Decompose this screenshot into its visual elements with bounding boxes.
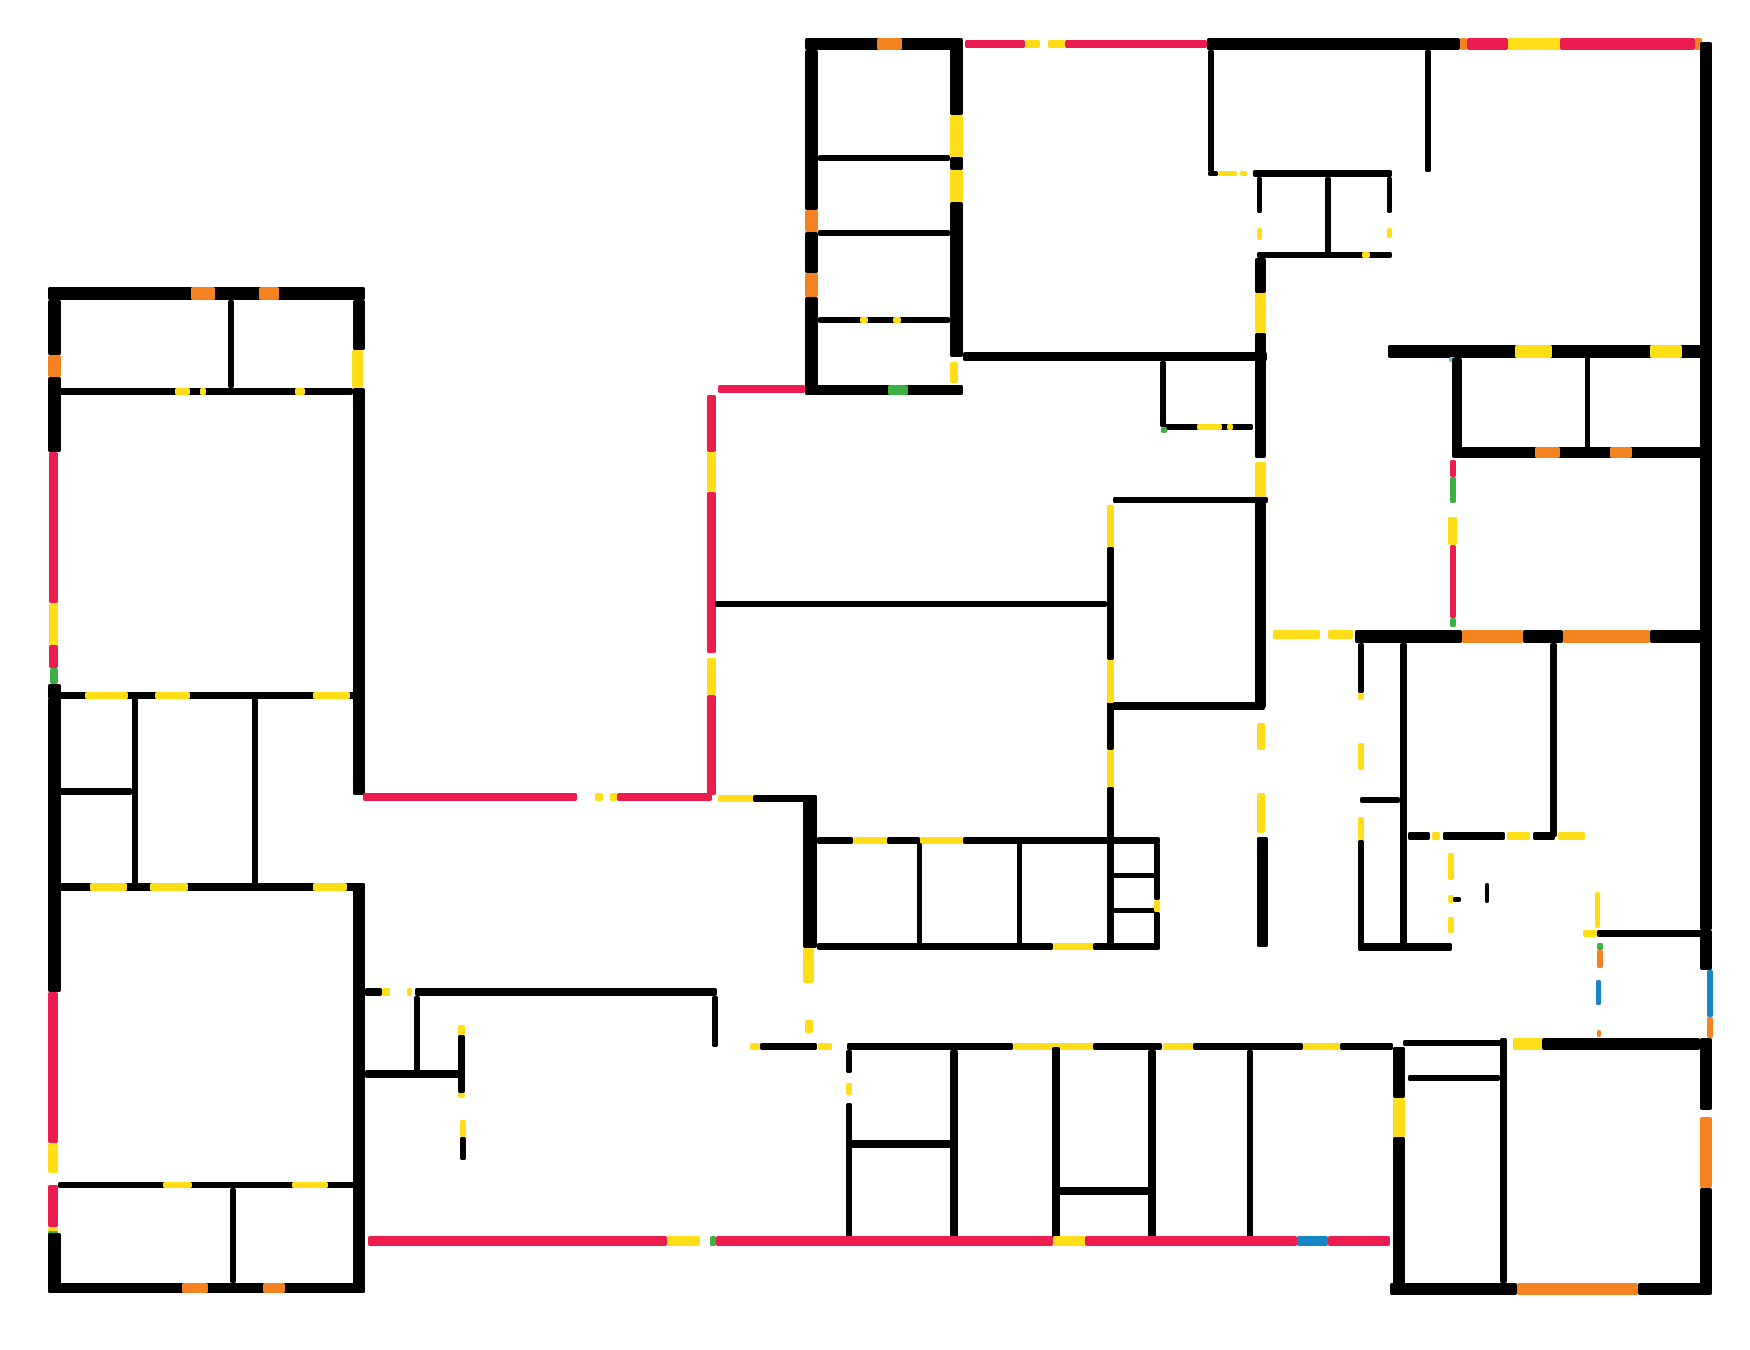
marker-yellow-segment bbox=[1255, 293, 1266, 333]
marker-yellow-segment bbox=[1432, 832, 1440, 840]
marker-blue-segment bbox=[1297, 1236, 1328, 1246]
marker-yellow-segment bbox=[1025, 40, 1040, 48]
marker-yellow-segment bbox=[1448, 917, 1454, 933]
marker-yellow-segment bbox=[407, 988, 412, 996]
wall-black-segment bbox=[1257, 252, 1392, 258]
wall-black-segment bbox=[1408, 1075, 1500, 1081]
wall-black-segment bbox=[1017, 843, 1022, 947]
wall-black-segment bbox=[818, 230, 950, 236]
wall-black-segment bbox=[460, 1137, 466, 1160]
wall-black-segment bbox=[1585, 357, 1590, 450]
wall-black-segment bbox=[1400, 643, 1407, 947]
marker-yellow-segment bbox=[707, 658, 716, 695]
marker-red-segment bbox=[1450, 460, 1456, 477]
wall-black-segment bbox=[1107, 547, 1114, 660]
marker-orange-segment bbox=[1610, 447, 1632, 458]
marker-yellow-segment bbox=[313, 692, 350, 699]
wall-black-segment bbox=[1110, 908, 1158, 913]
marker-yellow-segment bbox=[1650, 345, 1682, 358]
marker-yellow-segment bbox=[595, 793, 603, 801]
wall-black-segment bbox=[846, 1050, 852, 1073]
marker-yellow-segment bbox=[667, 1236, 700, 1246]
wall-black-segment bbox=[1257, 177, 1262, 213]
marker-yellow-segment bbox=[1513, 1038, 1542, 1050]
marker-yellow-segment bbox=[1328, 630, 1353, 639]
wall-black-segment bbox=[1485, 883, 1489, 903]
marker-yellow-segment bbox=[1154, 900, 1160, 912]
marker-yellow-segment bbox=[458, 1093, 465, 1098]
wall-black-segment bbox=[1253, 170, 1392, 177]
marker-yellow-segment bbox=[1448, 853, 1454, 880]
wall-black-segment bbox=[1255, 333, 1266, 458]
wall-black-segment bbox=[1393, 1047, 1405, 1098]
marker-green-segment bbox=[1450, 477, 1456, 503]
wall-black-segment bbox=[1542, 1038, 1700, 1050]
wall-black-segment bbox=[847, 1043, 1013, 1050]
wall-black-segment bbox=[1208, 171, 1218, 176]
wall-black-segment bbox=[817, 837, 853, 844]
marker-red-segment bbox=[718, 385, 805, 393]
marker-yellow-segment bbox=[1107, 750, 1114, 787]
wall-black-segment bbox=[1355, 630, 1462, 643]
marker-yellow-segment bbox=[1048, 40, 1065, 48]
marker-yellow-segment bbox=[200, 388, 206, 395]
wall-black-segment bbox=[1638, 1283, 1712, 1295]
marker-red-segment bbox=[1065, 40, 1207, 48]
wall-black-segment bbox=[1452, 358, 1462, 450]
marker-yellow-segment bbox=[150, 883, 188, 891]
marker-yellow-segment bbox=[1053, 1236, 1085, 1246]
marker-yellow-segment bbox=[1515, 345, 1552, 358]
marker-yellow-segment bbox=[1303, 1043, 1340, 1050]
wall-black-segment bbox=[1360, 797, 1400, 803]
wall-black-segment bbox=[1255, 258, 1266, 293]
marker-orange-segment bbox=[263, 1283, 285, 1293]
wall-black-segment bbox=[818, 155, 950, 161]
wall-black-segment bbox=[1700, 1188, 1712, 1288]
wall-black-segment bbox=[458, 1035, 465, 1093]
marker-yellow-segment bbox=[1595, 892, 1600, 928]
wall-black-segment bbox=[1257, 837, 1268, 947]
marker-yellow-segment bbox=[950, 115, 963, 157]
wall-black-segment bbox=[950, 157, 963, 170]
marker-red-segment bbox=[716, 1236, 1053, 1246]
wall-black-segment bbox=[760, 1043, 817, 1050]
marker-blue-segment bbox=[1707, 970, 1713, 1017]
marker-yellow-segment bbox=[805, 1020, 813, 1033]
marker-yellow-segment bbox=[382, 988, 390, 996]
wall-black-segment bbox=[846, 1103, 852, 1240]
marker-orange-segment bbox=[1707, 1017, 1713, 1038]
wall-black-segment bbox=[1533, 832, 1555, 840]
marker-yellow-segment bbox=[750, 1043, 760, 1050]
marker-yellow-segment bbox=[1273, 630, 1320, 639]
wall-black-segment bbox=[715, 601, 1107, 607]
marker-yellow-segment bbox=[352, 350, 363, 388]
marker-yellow-segment bbox=[610, 793, 617, 801]
wall-black-segment bbox=[950, 42, 963, 115]
wall-black-segment bbox=[132, 698, 138, 885]
wall-black-segment bbox=[1550, 643, 1557, 837]
marker-yellow-segment bbox=[846, 1083, 852, 1095]
marker-yellow-segment bbox=[460, 1120, 466, 1137]
wall-black-segment bbox=[252, 698, 258, 885]
wall-black-segment bbox=[712, 996, 718, 1047]
wall-black-segment bbox=[1425, 50, 1431, 172]
wall-black-segment bbox=[917, 843, 922, 947]
marker-orange-segment bbox=[1535, 447, 1560, 458]
marker-red-segment bbox=[363, 793, 577, 801]
marker-red-segment bbox=[1328, 1236, 1390, 1246]
marker-yellow-segment bbox=[1558, 832, 1585, 840]
wall-black-segment bbox=[1358, 643, 1364, 693]
marker-yellow-segment bbox=[313, 883, 347, 891]
wall-black-segment bbox=[963, 837, 1160, 844]
wall-black-segment bbox=[1523, 630, 1563, 643]
marker-yellow-segment bbox=[1583, 930, 1597, 937]
wall-black-segment bbox=[1148, 1050, 1156, 1240]
marker-red-segment bbox=[707, 395, 716, 452]
marker-yellow-segment bbox=[1053, 943, 1093, 950]
wall-black-segment bbox=[805, 50, 818, 210]
marker-orange-segment bbox=[191, 287, 215, 300]
marker-yellow-segment bbox=[1163, 1043, 1193, 1050]
wall-black-segment bbox=[1110, 873, 1158, 878]
marker-yellow-segment bbox=[1257, 228, 1262, 240]
marker-yellow-segment bbox=[458, 1025, 465, 1035]
marker-orange-segment bbox=[1700, 1117, 1712, 1188]
wall-black-segment bbox=[230, 1188, 236, 1283]
marker-yellow-segment bbox=[1448, 517, 1457, 545]
wall-black-segment bbox=[1052, 1047, 1060, 1240]
wall-black-segment bbox=[353, 388, 365, 795]
wall-black-segment bbox=[1207, 38, 1460, 50]
wall-black-segment bbox=[1700, 42, 1712, 930]
wall-black-segment bbox=[817, 943, 1053, 950]
wall-black-segment bbox=[1390, 1283, 1517, 1295]
marker-red-segment bbox=[707, 492, 716, 653]
marker-yellow-segment bbox=[1197, 424, 1222, 430]
marker-orange-segment bbox=[182, 1283, 208, 1293]
marker-yellow-segment bbox=[1362, 252, 1370, 258]
marker-yellow-segment bbox=[920, 837, 963, 844]
marker-green-segment bbox=[1450, 618, 1456, 627]
wall-black-segment bbox=[1107, 703, 1114, 750]
marker-yellow-segment bbox=[163, 1182, 192, 1188]
marker-orange-segment bbox=[48, 355, 61, 377]
wall-black-segment bbox=[415, 988, 717, 996]
marker-orange-segment bbox=[877, 38, 902, 50]
wall-black-segment bbox=[1403, 1040, 1505, 1046]
marker-orange-segment bbox=[1517, 1283, 1638, 1295]
wall-black-segment bbox=[414, 996, 420, 1073]
marker-red-segment bbox=[368, 1236, 667, 1246]
marker-yellow-segment bbox=[85, 692, 128, 699]
marker-yellow-segment bbox=[155, 692, 190, 699]
marker-yellow-segment bbox=[175, 388, 190, 395]
marker-orange-segment bbox=[805, 210, 818, 232]
marker-orange-segment bbox=[1597, 1030, 1601, 1037]
marker-yellow-segment bbox=[1107, 660, 1114, 703]
marker-green-segment bbox=[1597, 943, 1603, 950]
wall-black-segment bbox=[48, 698, 61, 992]
wall-black-segment bbox=[1500, 1038, 1507, 1283]
marker-yellow-segment bbox=[1227, 424, 1233, 430]
wall-black-segment bbox=[228, 300, 234, 388]
marker-red-segment bbox=[48, 1185, 58, 1227]
marker-red-segment bbox=[1450, 545, 1456, 618]
marker-yellow-segment bbox=[1393, 1098, 1405, 1137]
marker-yellow-segment bbox=[292, 1182, 328, 1188]
marker-yellow-segment bbox=[1218, 171, 1237, 176]
wall-black-segment bbox=[1700, 930, 1712, 970]
marker-blue-segment bbox=[1596, 980, 1601, 1005]
wall-black-segment bbox=[805, 385, 963, 395]
marker-yellow-segment bbox=[90, 883, 127, 891]
floor-plan-canvas bbox=[0, 0, 1750, 1350]
wall-black-segment bbox=[1325, 177, 1331, 253]
wall-black-segment bbox=[1650, 630, 1712, 643]
marker-red-segment bbox=[1467, 38, 1508, 50]
wall-black-segment bbox=[1597, 930, 1702, 937]
wall-black-segment bbox=[1255, 500, 1266, 708]
marker-yellow-segment bbox=[950, 170, 963, 202]
wall-black-segment bbox=[353, 300, 365, 350]
marker-yellow-segment bbox=[1507, 832, 1530, 840]
marker-yellow-segment bbox=[1358, 693, 1364, 700]
marker-yellow-segment bbox=[1257, 723, 1265, 750]
marker-yellow-segment bbox=[853, 837, 887, 844]
wall-black-segment bbox=[365, 988, 382, 996]
wall-black-segment bbox=[1107, 787, 1114, 947]
wall-black-segment bbox=[805, 297, 818, 390]
marker-green-segment bbox=[1161, 427, 1167, 433]
wall-black-segment bbox=[1358, 840, 1364, 947]
marker-yellow-segment bbox=[1387, 228, 1392, 238]
marker-yellow-segment bbox=[818, 1043, 832, 1050]
wall-black-segment bbox=[1340, 1043, 1393, 1050]
wall-black-segment bbox=[365, 1070, 463, 1078]
wall-black-segment bbox=[1113, 497, 1268, 503]
marker-yellow-segment bbox=[803, 948, 814, 983]
marker-red-segment bbox=[48, 992, 58, 1143]
wall-black-segment bbox=[1408, 832, 1430, 840]
marker-orange-segment bbox=[1563, 630, 1650, 643]
wall-black-segment bbox=[1107, 702, 1265, 710]
marker-orange-segment bbox=[1462, 630, 1523, 643]
wall-black-segment bbox=[1387, 177, 1392, 213]
marker-yellow-segment bbox=[1255, 462, 1266, 500]
marker-orange-segment bbox=[805, 273, 818, 297]
wall-black-segment bbox=[353, 883, 365, 1293]
marker-green-segment bbox=[888, 385, 908, 395]
wall-black-segment bbox=[1700, 1038, 1712, 1110]
wall-black-segment bbox=[1453, 897, 1461, 902]
wall-black-segment bbox=[1093, 1043, 1162, 1050]
wall-black-segment bbox=[1208, 50, 1214, 172]
wall-black-segment bbox=[1093, 943, 1160, 950]
wall-black-segment bbox=[1193, 1043, 1303, 1050]
marker-yellow-segment bbox=[950, 362, 958, 383]
wall-black-segment bbox=[58, 788, 132, 795]
marker-yellow-segment bbox=[718, 795, 753, 802]
marker-red-segment bbox=[49, 645, 58, 668]
marker-yellow-segment bbox=[1257, 793, 1265, 833]
wall-black-segment bbox=[803, 795, 817, 948]
wall-black-segment bbox=[1443, 832, 1505, 840]
marker-orange-segment bbox=[259, 287, 279, 300]
wall-black-segment bbox=[1452, 447, 1712, 458]
wall-black-segment bbox=[963, 352, 1267, 361]
wall-black-segment bbox=[1154, 912, 1160, 947]
wall-black-segment bbox=[887, 837, 920, 844]
marker-yellow-segment bbox=[1358, 743, 1364, 770]
marker-yellow-segment bbox=[1358, 817, 1364, 840]
marker-yellow-segment bbox=[1240, 171, 1247, 176]
marker-red-segment bbox=[1085, 1236, 1297, 1246]
marker-yellow-segment bbox=[1107, 505, 1114, 547]
marker-orange-segment bbox=[1460, 38, 1467, 50]
wall-black-segment bbox=[48, 300, 61, 355]
marker-yellow-segment bbox=[893, 317, 901, 323]
wall-black-segment bbox=[818, 317, 950, 323]
marker-yellow-segment bbox=[49, 603, 58, 645]
wall-black-segment bbox=[950, 202, 963, 357]
wall-black-segment bbox=[1247, 1050, 1253, 1240]
marker-yellow-segment bbox=[1508, 38, 1560, 50]
wall-black-segment bbox=[1393, 1137, 1405, 1293]
marker-red-segment bbox=[1560, 38, 1695, 50]
wall-black-segment bbox=[805, 232, 818, 273]
marker-yellow-segment bbox=[48, 1143, 58, 1173]
marker-red-segment bbox=[707, 695, 716, 795]
marker-orange-segment bbox=[1597, 950, 1603, 968]
marker-green-segment bbox=[50, 668, 58, 684]
wall-black-segment bbox=[850, 1140, 957, 1148]
marker-yellow-segment bbox=[295, 388, 305, 395]
marker-red-segment bbox=[617, 793, 712, 801]
marker-yellow-segment bbox=[707, 452, 716, 492]
wall-black-segment bbox=[1358, 943, 1452, 951]
wall-black-segment bbox=[1160, 361, 1166, 427]
marker-red-segment bbox=[965, 40, 1025, 48]
marker-yellow-segment bbox=[860, 317, 868, 323]
wall-black-segment bbox=[1154, 843, 1160, 900]
marker-red-segment bbox=[49, 452, 58, 603]
wall-black-segment bbox=[1053, 1187, 1155, 1195]
